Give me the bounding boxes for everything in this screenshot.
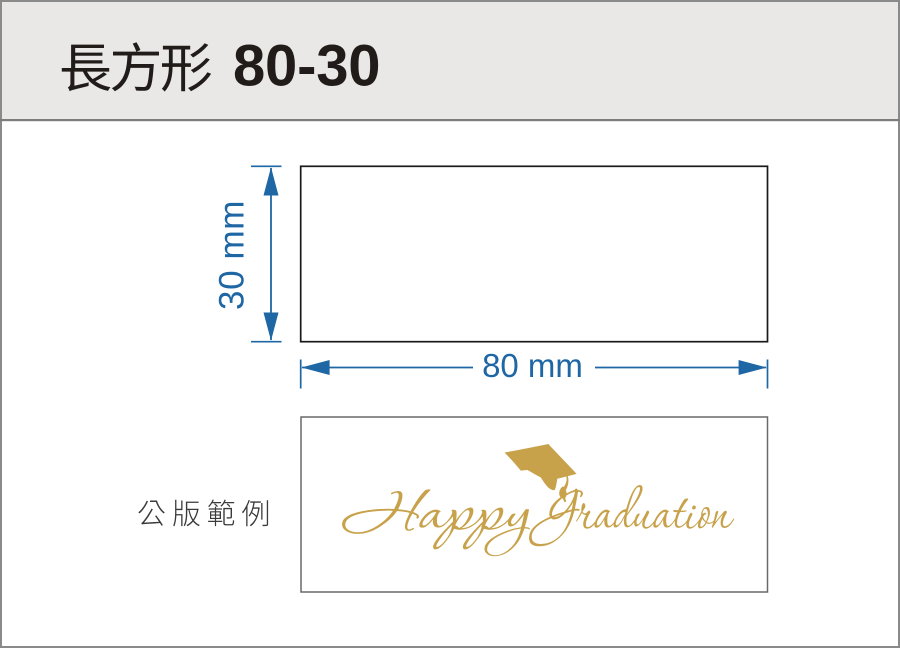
svg-text:30 mm: 30 mm xyxy=(213,200,252,310)
svg-text:80-30: 80-30 xyxy=(233,34,380,99)
svg-text:80 mm: 80 mm xyxy=(482,347,583,384)
